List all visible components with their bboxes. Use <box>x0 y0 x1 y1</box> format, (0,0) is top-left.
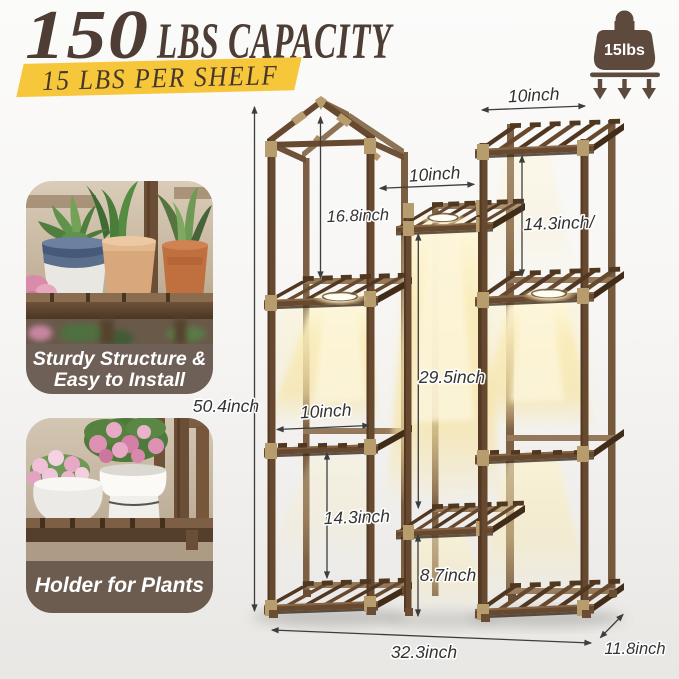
svg-text:8.7inch: 8.7inch <box>420 565 476 585</box>
svg-text:11.8inch: 11.8inch <box>604 640 665 658</box>
svg-text:32.3inch: 32.3inch <box>391 642 457 662</box>
svg-text:10inch: 10inch <box>299 400 352 423</box>
svg-text:10inch: 10inch <box>408 162 461 186</box>
svg-text:29.5inch: 29.5inch <box>418 367 485 387</box>
svg-text:14.3inch: 14.3inch <box>323 506 390 528</box>
svg-text:10inch: 10inch <box>507 84 560 107</box>
svg-text:14.3inch/: 14.3inch/ <box>523 212 597 235</box>
svg-text:50.4inch: 50.4inch <box>193 396 259 416</box>
svg-text:16.8inch: 16.8inch <box>326 206 389 226</box>
